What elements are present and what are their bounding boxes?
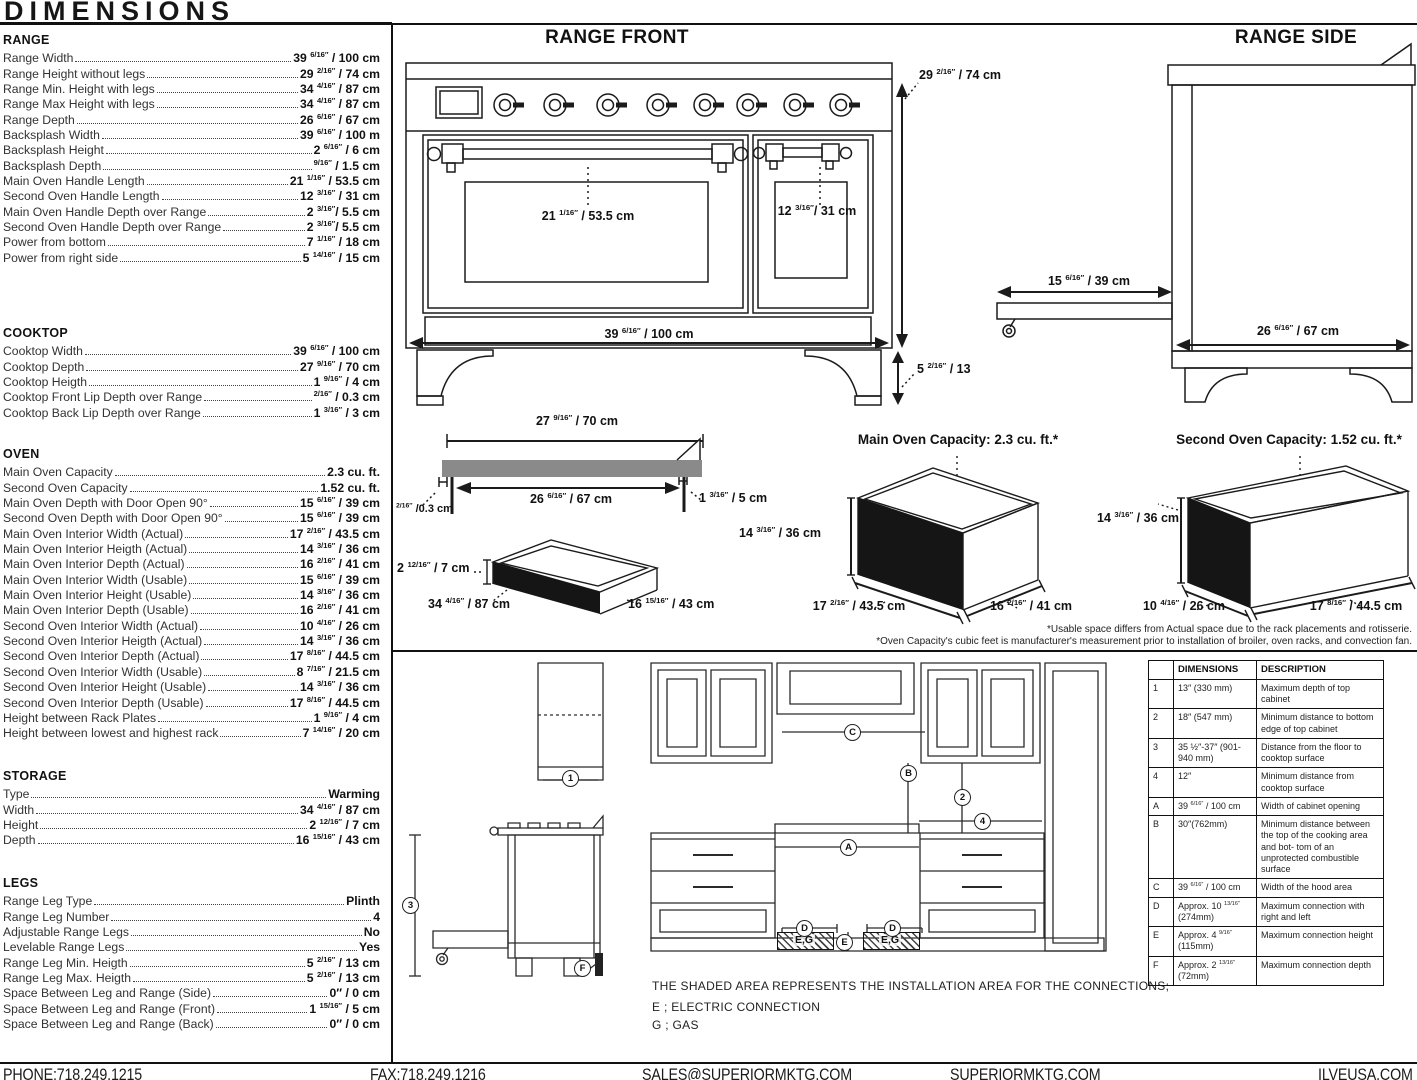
callout-F: F: [574, 960, 591, 977]
range-front-leg-dim: 5 2/16″ / 13: [917, 362, 971, 376]
table-cell-id: C: [1149, 879, 1174, 897]
spec-value: 14 3/16″ / 36 cm: [300, 634, 380, 648]
range-side-drawer-dim: 15 6/16″ / 39 cm: [1048, 274, 1130, 288]
table-cell-id: F: [1149, 956, 1174, 986]
spec-label: Main Oven Interior Height (Usable): [3, 588, 191, 602]
storage-depth-dim: 16 15/16″ / 43 cm: [628, 597, 714, 611]
spec-value: 15 6/16″ / 39 cm: [300, 496, 380, 510]
spec-label: Power from bottom: [3, 235, 106, 249]
dot-leader: [213, 996, 327, 997]
spec-value: 26 6/16″ / 67 cm: [300, 113, 380, 127]
spec-label: Range Leg Min. Heigth: [3, 956, 128, 970]
spec-label: Second Oven Depth with Door Open 90°: [3, 511, 223, 525]
dot-leader: [203, 416, 312, 417]
spec-label: Second Oven Capacity: [3, 481, 128, 495]
spec-row: Power from bottom7 1/16″ / 18 cm: [3, 234, 380, 249]
panel-divider: [391, 23, 393, 1063]
spec-value: 2 3/16″/ 5.5 cm: [307, 205, 380, 219]
spec-section-title: COOKTOP: [3, 326, 380, 343]
spec-label: Second Oven Interior Width (Usable): [3, 665, 202, 679]
storage-drawer-drawing: [395, 538, 740, 646]
spec-value: 7 14/16″ / 20 cm: [303, 726, 380, 740]
spec-label: Cooktop Depth: [3, 360, 84, 374]
table-cell-description: Minimum distance between the top of the …: [1257, 816, 1384, 879]
table-cell-description: Distance from the floor to cooktop surfa…: [1257, 738, 1384, 768]
top-rule: [392, 23, 1417, 25]
dot-leader: [131, 935, 362, 936]
spec-label: Range Min. Height with legs: [3, 82, 155, 96]
cooktop-profile-drawing: [395, 413, 780, 545]
table-row: 335 ½″-37″ (901-940 mm)Distance from the…: [1149, 738, 1384, 768]
callout-A: A: [840, 839, 857, 856]
knob-icons: [494, 94, 860, 116]
spec-row: Cooktop Heigth1 9/16″ / 4 cm: [3, 374, 380, 389]
footer-phone: PHONE:718.249.1215: [3, 1065, 142, 1080]
range-front-second-door-dim: 12 3/16″/ 31 cm: [774, 203, 860, 219]
spec-value: 0″ / 0 cm: [329, 986, 380, 1000]
callout-D-left: D: [796, 920, 813, 937]
spec-value: 2 6/16″ / 6 cm: [314, 143, 380, 157]
dot-leader: [220, 736, 300, 737]
table-cell-description: Maximum connection depth: [1257, 956, 1384, 986]
dot-leader: [115, 475, 325, 476]
table-row: 218″ (547 mm)Minimum distance to bottom …: [1149, 709, 1384, 739]
spec-label: Second Oven Handle Length: [3, 189, 160, 203]
dot-leader: [85, 354, 291, 355]
spec-row: Main Oven Capacity2.3 cu. ft.: [3, 464, 380, 479]
spec-section-title: OVEN: [3, 447, 380, 464]
cooktop-back-lip-dim: 1 3/16″ / 5 cm: [699, 491, 767, 505]
spec-value: 14 3/16″ / 36 cm: [300, 542, 380, 556]
spec-value: 16 2/16″ / 41 cm: [300, 603, 380, 617]
spec-row: Second Oven Interior Width (Usable)8 7/1…: [3, 663, 380, 678]
table-cell-dimensions: Approx. 10 13/16″ (274mm): [1174, 897, 1257, 927]
dot-leader: [210, 506, 298, 507]
spec-label: Second Oven Interior Height (Usable): [3, 680, 206, 694]
spec-row: Second Oven Interior Depth (Actual)17 8/…: [3, 648, 380, 663]
spec-value: 9/16″ / 1.5 cm: [314, 159, 380, 173]
table-cell-description: Maximum depth of top cabinet: [1257, 679, 1384, 709]
spec-value: 17 2/16″ / 43.5 cm: [290, 527, 380, 541]
spec-row: Range Height without legs29 2/16″ / 74 c…: [3, 65, 380, 80]
dot-leader: [200, 629, 298, 630]
dot-leader: [217, 1012, 307, 1013]
dot-leader: [130, 491, 319, 492]
spec-label: Main Oven Depth with Door Open 90°: [3, 496, 208, 510]
spec-value: 16 2/16″ / 41 cm: [300, 557, 380, 571]
table-row: EApprox. 4 9/16″ (115mm)Maximum connecti…: [1149, 927, 1384, 957]
dot-leader: [193, 598, 298, 599]
spec-value: 39 6/16″ / 100 cm: [293, 51, 380, 65]
main-oven-height-dim: 14 3/16″ / 36 cm: [739, 526, 821, 540]
spec-value: 39 6/16″ / 100 cm: [293, 344, 380, 358]
second-oven-title: Second Oven Capacity: 1.52 cu. ft.*: [1176, 432, 1402, 447]
spec-label: Depth: [3, 833, 36, 847]
spec-value: 7 1/16″ / 18 cm: [307, 235, 380, 249]
spec-value: 12 3/16″ / 31 cm: [300, 189, 380, 203]
dot-leader: [189, 552, 298, 553]
table-cell-dimensions: Approx. 2 13/16″ (72mm): [1174, 956, 1257, 986]
spec-section-title: STORAGE: [3, 769, 380, 786]
spec-value: 27 9/16″ / 70 cm: [300, 360, 380, 374]
table-cell-id: A: [1149, 797, 1174, 815]
dot-leader: [75, 61, 291, 62]
spec-value: 14 3/16″ / 36 cm: [300, 680, 380, 694]
spec-row: Height between lowest and highest rack7 …: [3, 725, 380, 740]
table-cell-description: Minimum distance to bottom edge of top c…: [1257, 709, 1384, 739]
range-front-title: RANGE FRONT: [545, 27, 689, 49]
table-header-id: [1149, 661, 1174, 680]
spec-label: Main Oven Interior Width (Usable): [3, 573, 187, 587]
spec-label: Space Between Leg and Range (Back): [3, 1017, 214, 1031]
spec-value: 2.3 cu. ft.: [327, 465, 380, 479]
spec-value: 10 4/16″ / 26 cm: [300, 619, 380, 633]
table-row: DApprox. 10 13/16″ (274mm)Maximum connec…: [1149, 897, 1384, 927]
spec-row: Range Max Height with legs34 4/16″ / 87 …: [3, 96, 380, 111]
dot-leader: [158, 721, 311, 722]
spec-value: 17 8/16″ / 44.5 cm: [290, 696, 380, 710]
spec-value: 16 15/16″ / 43 cm: [296, 833, 380, 847]
dot-leader: [86, 370, 298, 371]
spec-value: 2 3/16″/ 5.5 cm: [307, 220, 380, 234]
spec-value: No: [364, 925, 380, 939]
spec-label: Backsplash Depth: [3, 159, 101, 173]
table-cell-id: E: [1149, 927, 1174, 957]
spec-label: Range Leg Number: [3, 910, 109, 924]
spec-label: Second Oven Handle Depth over Range: [3, 220, 221, 234]
installation-elevation-drawing: [645, 655, 1110, 955]
spec-label: Main Oven Handle Length: [3, 174, 145, 188]
spec-row: Range Min. Height with legs34 4/16″ / 87…: [3, 81, 380, 96]
spec-section-oven: OVENMain Oven Capacity2.3 cu. ft.Second …: [3, 447, 380, 740]
spec-label: Height between Rack Plates: [3, 711, 156, 725]
spec-label: Space Between Leg and Range (Side): [3, 986, 211, 1000]
dot-leader: [94, 904, 344, 905]
spec-value: 8 7/16″ / 21.5 cm: [297, 665, 380, 679]
table-cell-dimensions: 12″: [1174, 768, 1257, 798]
table-cell-id: 1: [1149, 679, 1174, 709]
table-header-description: DESCRIPTION: [1257, 661, 1384, 680]
legend-gas: G ; GAS: [652, 1018, 699, 1032]
table-row: C39 6/16″ / 100 cmWidth of the hood area: [1149, 879, 1384, 897]
spec-row: Power from right side5 14/16″ / 15 cm: [3, 249, 380, 264]
spec-row: Range Width39 6/16″ / 100 cm: [3, 50, 380, 65]
cooktop-front-lip-dim: 2/16″ /0.3 cm: [396, 503, 453, 515]
callout-D-right: D: [884, 920, 901, 937]
spec-row: Space Between Leg and Range (Front)1 15/…: [3, 1000, 380, 1015]
dot-leader: [204, 675, 294, 676]
main-oven-width-dim: 17 2/16″ / 43.5 cm: [813, 599, 905, 613]
dot-leader: [120, 261, 300, 262]
spec-row: Width34 4/16″ / 87 cm: [3, 801, 380, 816]
footer-site: SUPERIORMKTG.COM: [950, 1065, 1100, 1080]
range-side-depth-dim: 26 6/16″ / 67 cm: [1257, 324, 1339, 338]
footer-email: SALES@SUPERIORMKTG.COM: [642, 1065, 852, 1080]
spec-row: Second Oven Handle Length12 3/16″ / 31 c…: [3, 188, 380, 203]
oven-footnote-1: *Usable space differs from Actual space …: [1047, 624, 1412, 635]
spec-label: Adjustable Range Legs: [3, 925, 129, 939]
spec-value: 4: [373, 910, 380, 924]
callout-2: 2: [954, 789, 971, 806]
dot-leader: [31, 797, 326, 798]
spec-value: 2/16″ / 0.3 cm: [314, 390, 380, 404]
spec-value: 1.52 cu. ft.: [320, 481, 380, 495]
spec-label: Main Oven Interior Depth (Usable): [3, 603, 189, 617]
mid-divider: [392, 650, 1417, 652]
spec-label: Cooktop Width: [3, 344, 83, 358]
oven-footnote-2: *Oven Capacity's cubic feet is manufactu…: [876, 636, 1412, 647]
spec-value: 15 6/16″ / 39 cm: [300, 573, 380, 587]
dot-leader: [208, 215, 305, 216]
spec-label: Type: [3, 787, 29, 801]
spec-row: Depth16 15/16″ / 43 cm: [3, 832, 380, 847]
cooktop-width-dim: 27 9/16″ / 70 cm: [536, 414, 618, 428]
dot-leader: [225, 521, 298, 522]
dot-leader: [106, 153, 312, 154]
spec-row: Height2 12/16″ / 7 cm: [3, 817, 380, 832]
spec-label: Height: [3, 818, 38, 832]
spec-label: Main Oven Handle Depth over Range: [3, 205, 206, 219]
spec-value: 17 8/16″ / 44.5 cm: [290, 649, 380, 663]
spec-value: 1 15/16″ / 5 cm: [309, 1002, 380, 1016]
table-row: B30″(762mm)Minimum distance between the …: [1149, 816, 1384, 879]
spec-value: 21 1/16″ / 53.5 cm: [290, 174, 380, 188]
spec-label: Backsplash Width: [3, 128, 100, 142]
spec-section-storage: STORAGETypeWarmingWidth34 4/16″ / 87 cmH…: [3, 769, 380, 847]
table-cell-dimensions: 39 6/16″ / 100 cm: [1174, 797, 1257, 815]
spec-value: 29 2/16″ / 74 cm: [300, 67, 380, 81]
spec-row: Second Oven Interior Width (Actual)10 4/…: [3, 617, 380, 632]
range-front-drawing: [403, 55, 923, 407]
dot-leader: [185, 537, 288, 538]
dot-leader: [38, 843, 294, 844]
spec-row: Range Leg Min. Heigth5 2/16″ / 13 cm: [3, 954, 380, 969]
table-cell-description: Width of the hood area: [1257, 879, 1384, 897]
spec-value: 2 12/16″ / 7 cm: [309, 818, 380, 832]
range-front-width-dim: 39 6/16″ / 100 cm: [604, 327, 693, 341]
spec-row: Backsplash Width39 6/16″ / 100 m: [3, 127, 380, 142]
spec-label: Range Depth: [3, 113, 75, 127]
dot-leader: [108, 245, 305, 246]
installation-side-drawing: [398, 658, 663, 993]
spec-panel: RANGERange Width39 6/16″ / 100 cmRange H…: [0, 0, 390, 1060]
spec-row: Main Oven Handle Length21 1/16″ / 53.5 c…: [3, 173, 380, 188]
dot-leader: [162, 199, 298, 200]
dot-leader: [191, 613, 298, 614]
spec-row: Main Oven Interior Depth (Usable)16 2/16…: [3, 602, 380, 617]
cooktop-inner-dim: 26 6/16″ / 67 cm: [530, 492, 612, 506]
callout-4: 4: [974, 813, 991, 830]
dot-leader: [103, 169, 311, 170]
spec-label: Width: [3, 803, 34, 817]
table-cell-description: Width of cabinet opening: [1257, 797, 1384, 815]
spec-row: Main Oven Handle Depth over Range2 3/16″…: [3, 203, 380, 218]
spec-section-title: RANGE: [3, 33, 380, 50]
table-row: 113″ (330 mm)Maximum depth of top cabine…: [1149, 679, 1384, 709]
table-row: A39 6/16″ / 100 cmWidth of cabinet openi…: [1149, 797, 1384, 815]
spec-row: Main Oven Interior Width (Usable)15 6/16…: [3, 571, 380, 586]
dot-leader: [157, 92, 298, 93]
spec-row: Space Between Leg and Range (Side)0″ / 0…: [3, 985, 380, 1000]
spec-value: 1 9/16″ / 4 cm: [314, 711, 380, 725]
dot-leader: [189, 583, 298, 584]
dot-leader: [102, 138, 298, 139]
table-cell-dimensions: 13″ (330 mm): [1174, 679, 1257, 709]
spec-label: Range Height without legs: [3, 67, 145, 81]
spec-value: 14 3/16″ / 36 cm: [300, 588, 380, 602]
table-cell-dimensions: Approx. 4 9/16″ (115mm): [1174, 927, 1257, 957]
dot-leader: [204, 400, 311, 401]
main-oven-depth-dim: 16 2/16″ / 41 cm: [990, 599, 1072, 613]
spec-value: 34 4/16″ / 87 cm: [300, 97, 380, 111]
spec-value: 1 3/16″ / 3 cm: [314, 406, 380, 420]
dot-leader: [216, 1027, 328, 1028]
spec-row: Levelable Range LegsYes: [3, 939, 380, 954]
spec-label: Range Width: [3, 51, 73, 65]
spec-value: 5 2/16″ / 13 cm: [307, 971, 380, 985]
spec-label: Space Between Leg and Range (Front): [3, 1002, 215, 1016]
table-cell-id: D: [1149, 897, 1174, 927]
dot-leader: [157, 107, 298, 108]
table-cell-dimensions: 39 6/16″ / 100 cm: [1174, 879, 1257, 897]
dot-leader: [40, 828, 307, 829]
dot-leader: [133, 981, 305, 982]
callout-B: B: [900, 765, 917, 782]
spec-label: Main Oven Capacity: [3, 465, 113, 479]
spec-section-cooktop: COOKTOPCooktop Width39 6/16″ / 100 cmCoo…: [3, 326, 380, 420]
spec-value: 0″ / 0 cm: [329, 1017, 380, 1031]
spec-row: Range Leg TypePlinth: [3, 893, 380, 908]
table-cell-description: Minimum distance from cooktop surface: [1257, 768, 1384, 798]
storage-height-dim: 2 12/16″ / 7 cm: [397, 561, 469, 575]
dot-leader: [208, 690, 298, 691]
spec-label: Second Oven Interior Depth (Usable): [3, 696, 204, 710]
spec-row: Adjustable Range LegsNo: [3, 924, 380, 939]
table-cell-description: Maximum connection height: [1257, 927, 1384, 957]
installation-note: THE SHADED AREA REPRESENTS THE INSTALLAT…: [652, 979, 1169, 993]
dimensions-spec-sheet: DIMENSIONS RANGERange Width39 6/16″ / 10…: [0, 0, 1417, 1080]
second-oven-height-dim: 14 3/16″ / 36 cm: [1097, 511, 1179, 525]
spec-label: Range Leg Max. Heigth: [3, 971, 131, 985]
dot-leader: [89, 385, 312, 386]
spec-row: Second Oven Depth with Door Open 90°15 6…: [3, 510, 380, 525]
spec-label: Second Oven Interior Depth (Actual): [3, 649, 199, 663]
spec-row: Second Oven Interior Heigth (Actual)14 3…: [3, 633, 380, 648]
callout-C: C: [844, 724, 861, 741]
spec-label: Second Oven Interior Heigth (Actual): [3, 634, 202, 648]
second-oven-width-dim: 10 4/16″ / 26 cm: [1143, 599, 1225, 613]
table-row: FApprox. 2 13/16″ (72mm)Maximum connecti…: [1149, 956, 1384, 986]
table-row: 412″Minimum distance from cooktop surfac…: [1149, 768, 1384, 798]
spec-row: Cooktop Front Lip Depth over Range2/16″ …: [3, 389, 380, 404]
table-cell-id: 3: [1149, 738, 1174, 768]
spec-value: 1 9/16″ / 4 cm: [314, 375, 380, 389]
legend-electric: E ; ELECTRIC CONNECTION: [652, 1000, 820, 1014]
reference-table: DIMENSIONS DESCRIPTION 113″ (330 mm)Maxi…: [1148, 660, 1384, 986]
spec-value: 5 14/16″ / 15 cm: [303, 251, 380, 265]
table-cell-description: Maximum connection with right and left: [1257, 897, 1384, 927]
spec-label: Cooktop Back Lip Depth over Range: [3, 406, 201, 420]
callout-3: 3: [402, 897, 419, 914]
spec-section-title: LEGS: [3, 876, 380, 893]
dot-leader: [111, 920, 371, 921]
dot-leader: [201, 659, 287, 660]
spec-row: Main Oven Interior Depth (Actual)16 2/16…: [3, 556, 380, 571]
spec-section-legs: LEGSRange Leg TypePlinthRange Leg Number…: [3, 876, 380, 1031]
spec-label: Range Leg Type: [3, 894, 92, 908]
spec-row: Second Oven Interior Height (Usable)14 3…: [3, 679, 380, 694]
dot-leader: [36, 813, 298, 814]
table-cell-id: 2: [1149, 709, 1174, 739]
spec-label: Backsplash Height: [3, 143, 104, 157]
table-cell-id: 4: [1149, 768, 1174, 798]
spec-value: Yes: [359, 940, 380, 954]
spec-label: Cooktop Heigth: [3, 375, 87, 389]
callout-1: 1: [562, 770, 579, 787]
dot-leader: [130, 966, 305, 967]
second-oven-depth-dim: 17 8/16″ / 44.5 cm: [1310, 599, 1402, 613]
spec-row: Range Depth26 6/16″ / 67 cm: [3, 111, 380, 126]
table-cell-dimensions: 18″ (547 mm): [1174, 709, 1257, 739]
spec-row: Second Oven Capacity1.52 cu. ft.: [3, 479, 380, 494]
spec-row: Backsplash Height2 6/16″ / 6 cm: [3, 142, 380, 157]
spec-label: Main Oven Interior Width (Actual): [3, 527, 183, 541]
table-cell-id: B: [1149, 816, 1174, 879]
spec-row: Main Oven Depth with Door Open 90°15 6/1…: [3, 495, 380, 510]
spec-label: Second Oven Interior Width (Actual): [3, 619, 198, 633]
dot-leader: [147, 77, 298, 78]
footer-rule: [0, 1062, 1417, 1064]
spec-row: TypeWarming: [3, 786, 380, 801]
table-cell-dimensions: 35 ½″-37″ (901-940 mm): [1174, 738, 1257, 768]
spec-row: Range Leg Number4: [3, 908, 380, 923]
table-cell-dimensions: 30″(762mm): [1174, 816, 1257, 879]
spec-value: 5 2/16″ / 13 cm: [307, 956, 380, 970]
spec-row: Main Oven Interior Width (Actual)17 2/16…: [3, 525, 380, 540]
spec-row: Backsplash Depth9/16″ / 1.5 cm: [3, 157, 380, 172]
spec-row: Range Leg Max. Heigth5 2/16″ / 13 cm: [3, 970, 380, 985]
spec-row: Main Oven Interior Height (Usable)14 3/1…: [3, 587, 380, 602]
dot-leader: [77, 123, 298, 124]
spec-row: Cooktop Depth27 9/16″ / 70 cm: [3, 358, 380, 373]
spec-row: Height between Rack Plates1 9/16″ / 4 cm: [3, 710, 380, 725]
callout-E: E: [836, 934, 853, 951]
spec-label: Main Oven Interior Heigth (Actual): [3, 542, 187, 556]
spec-value: Warming: [328, 787, 380, 801]
spec-row: Main Oven Interior Heigth (Actual)14 3/1…: [3, 541, 380, 556]
table-header-dimensions: DIMENSIONS: [1174, 661, 1257, 680]
footer-site2: ILVEUSA.COM: [1318, 1065, 1413, 1080]
dot-leader: [126, 950, 357, 951]
dot-leader: [204, 644, 298, 645]
spec-label: Cooktop Front Lip Depth over Range: [3, 390, 202, 404]
storage-width-dim: 34 4/16″ / 87 cm: [428, 597, 510, 611]
spec-row: Second Oven Interior Depth (Usable)17 8/…: [3, 694, 380, 709]
dot-leader: [187, 567, 298, 568]
spec-label: Range Max Height with legs: [3, 97, 155, 111]
main-oven-title: Main Oven Capacity: 2.3 cu. ft.*: [858, 432, 1058, 447]
spec-label: Height between lowest and highest rack: [3, 726, 218, 740]
spec-section-range: RANGERange Width39 6/16″ / 100 cmRange H…: [3, 33, 380, 265]
range-side-drawing: [985, 40, 1417, 405]
spec-row: Cooktop Width39 6/16″ / 100 cm: [3, 343, 380, 358]
spec-value: 34 4/16″ / 87 cm: [300, 803, 380, 817]
spec-value: Plinth: [346, 894, 380, 908]
range-front-main-door-dim: 21 1/16″ / 53.5 cm: [542, 209, 634, 223]
spec-value: 15 6/16″ / 39 cm: [300, 511, 380, 525]
spec-label: Levelable Range Legs: [3, 940, 124, 954]
spec-label: Main Oven Interior Depth (Actual): [3, 557, 185, 571]
